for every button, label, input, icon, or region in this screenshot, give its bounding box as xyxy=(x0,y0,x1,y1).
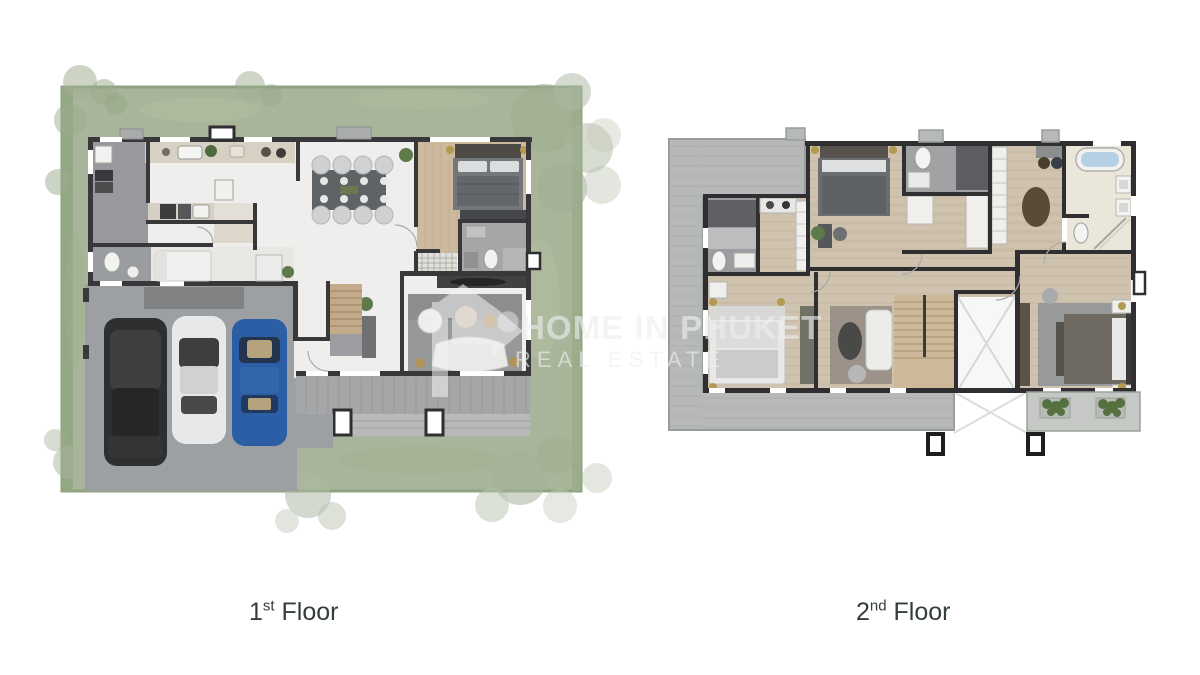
svg-text:REAL ESTATE: REAL ESTATE xyxy=(515,347,726,372)
svg-text:HOME IN PHUKET: HOME IN PHUKET xyxy=(521,309,822,346)
